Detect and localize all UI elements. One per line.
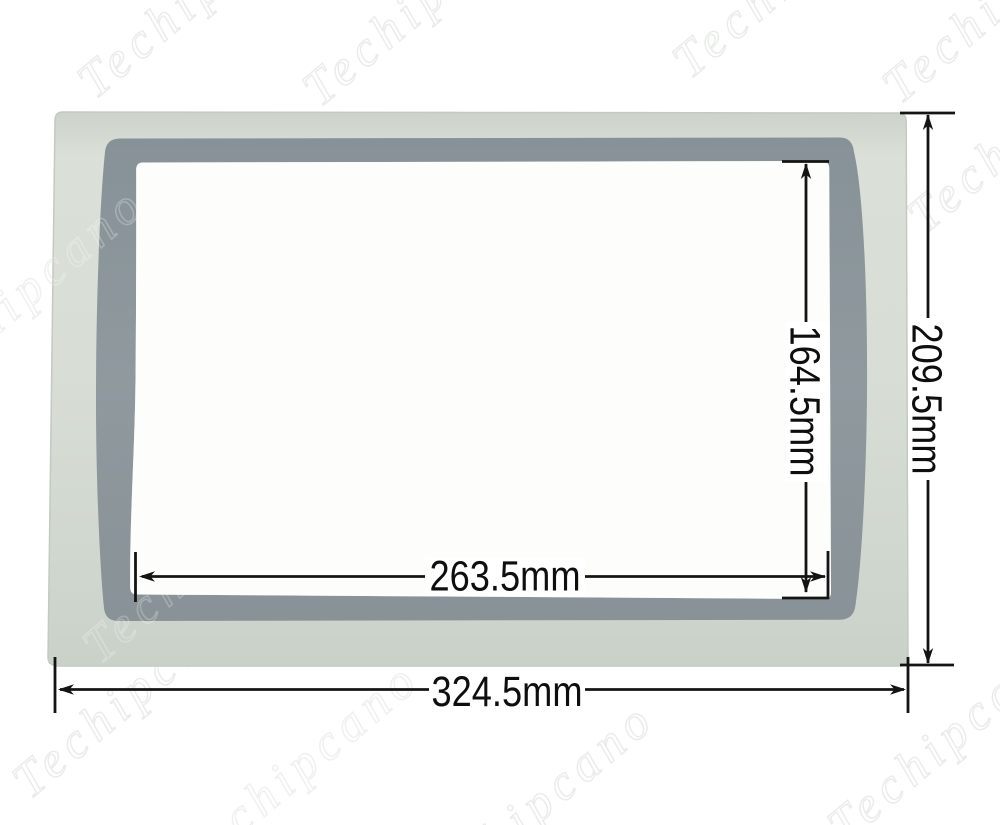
svg-text:164.5mm: 164.5mm bbox=[781, 326, 828, 477]
svg-text:324.5mm: 324.5mm bbox=[432, 669, 583, 716]
svg-text:263.5mm: 263.5mm bbox=[430, 554, 581, 601]
svg-text:209.5mm: 209.5mm bbox=[903, 324, 950, 475]
